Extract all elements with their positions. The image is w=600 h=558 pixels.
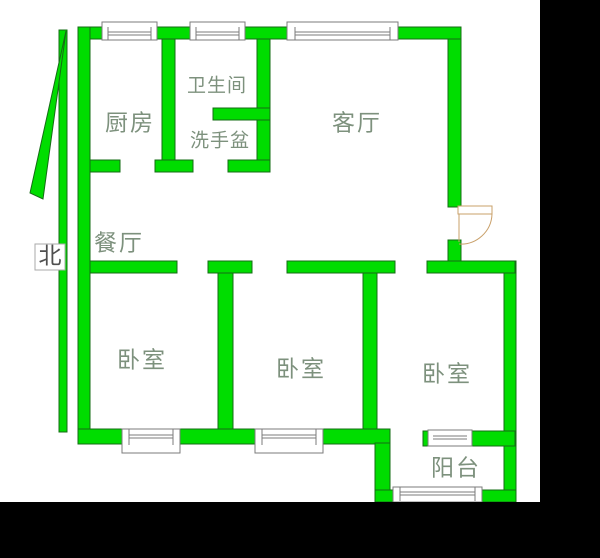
window-icon-bedroom2 <box>255 429 323 453</box>
wall-bathroom-divider <box>213 108 270 120</box>
wall-entry-stub <box>448 240 461 263</box>
wall-bedroom1-bedroom2-divider <box>218 273 233 431</box>
floorplan-drawing <box>0 0 540 502</box>
room-label-dining-room: 餐厅 <box>94 233 144 256</box>
wall-bedroom2-bedroom3-divider <box>363 273 377 433</box>
wall-left-exterior <box>78 27 90 441</box>
wall-livingroom-right <box>448 39 461 207</box>
window-icon-bedroom3-balcony <box>428 430 472 446</box>
wall-middle-segment-2 <box>208 261 252 273</box>
wall-bathroom-right <box>257 39 270 161</box>
window-icon-living-room <box>287 22 398 40</box>
room-label-washbasin: 洗手盆 <box>190 132 250 151</box>
wall-kitchen-bottom-left <box>90 160 120 172</box>
wall-bathroom-bottom <box>228 160 270 172</box>
room-label-bedroom1: 卧室 <box>117 350 167 373</box>
page-background: 厨房 卫生间 洗手盆 客厅 餐厅 卧室 卧室 卧室 阳台 北 <box>0 0 600 558</box>
wall-middle-segment-3 <box>287 261 395 273</box>
north-label: 北 <box>35 244 66 271</box>
wall-kitchen-right <box>162 39 175 161</box>
floorplan-image: 厨房 卫生间 洗手盆 客厅 餐厅 卧室 卧室 卧室 阳台 北 <box>0 0 540 502</box>
room-label-bedroom3: 卧室 <box>422 364 472 387</box>
entry-door-icon <box>458 206 492 244</box>
wall-kitchen-bottom-right <box>155 160 193 172</box>
window-icon-bedroom1 <box>122 429 180 453</box>
wall-right-exterior <box>504 261 516 502</box>
room-label-bedroom2: 卧室 <box>276 359 326 382</box>
room-label-balcony: 阳台 <box>431 458 481 481</box>
window-icon-bathroom <box>190 22 245 40</box>
room-label-kitchen: 厨房 <box>105 113 155 136</box>
window-icon-balcony <box>393 487 482 502</box>
window-icon-kitchen <box>102 22 157 40</box>
north-arrow-icon <box>30 30 67 432</box>
room-label-living-room: 客厅 <box>332 113 382 136</box>
wall-middle-segment-4 <box>427 261 515 273</box>
wall-middle-segment-1 <box>90 261 177 273</box>
room-label-bathroom: 卫生间 <box>187 77 247 96</box>
